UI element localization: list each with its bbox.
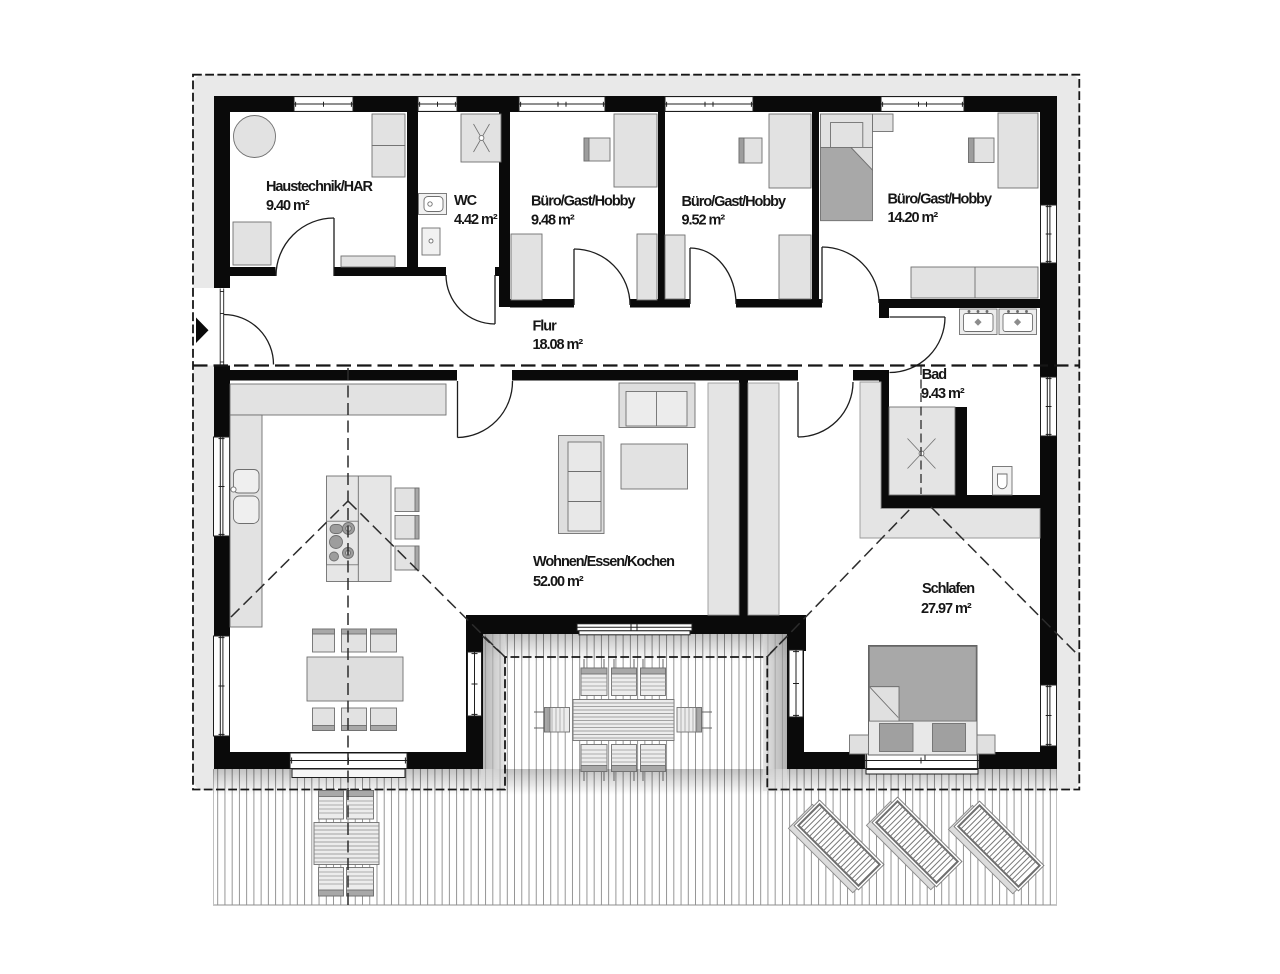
- svg-text:Büro/Gast/Hobby: Büro/Gast/Hobby: [888, 192, 992, 208]
- svg-text:Schlafen: Schlafen: [922, 581, 974, 597]
- svg-text:Flur: Flur: [533, 319, 558, 335]
- svg-text:Haustechnik/HAR: Haustechnik/HAR: [266, 179, 373, 195]
- svg-text:Büro/Gast/Hobby: Büro/Gast/Hobby: [682, 194, 786, 210]
- svg-text:18.08 m²: 18.08 m²: [533, 337, 584, 353]
- svg-text:9.52 m²: 9.52 m²: [682, 213, 726, 229]
- svg-text:52.00 m²: 52.00 m²: [533, 574, 584, 590]
- svg-text:Büro/Gast/Hobby: Büro/Gast/Hobby: [531, 194, 635, 210]
- svg-text:14.20 m²: 14.20 m²: [888, 210, 939, 226]
- svg-text:9.40 m²: 9.40 m²: [266, 198, 310, 214]
- svg-text:4.42 m²: 4.42 m²: [454, 212, 498, 228]
- svg-text:Wohnen/Essen/Kochen: Wohnen/Essen/Kochen: [533, 554, 674, 570]
- svg-text:9.43 m²: 9.43 m²: [921, 386, 965, 402]
- svg-text:27.97 m²: 27.97 m²: [921, 601, 972, 617]
- svg-text:9.48 m²: 9.48 m²: [531, 213, 575, 229]
- svg-text:WC: WC: [454, 193, 478, 209]
- svg-text:Bad: Bad: [922, 367, 946, 383]
